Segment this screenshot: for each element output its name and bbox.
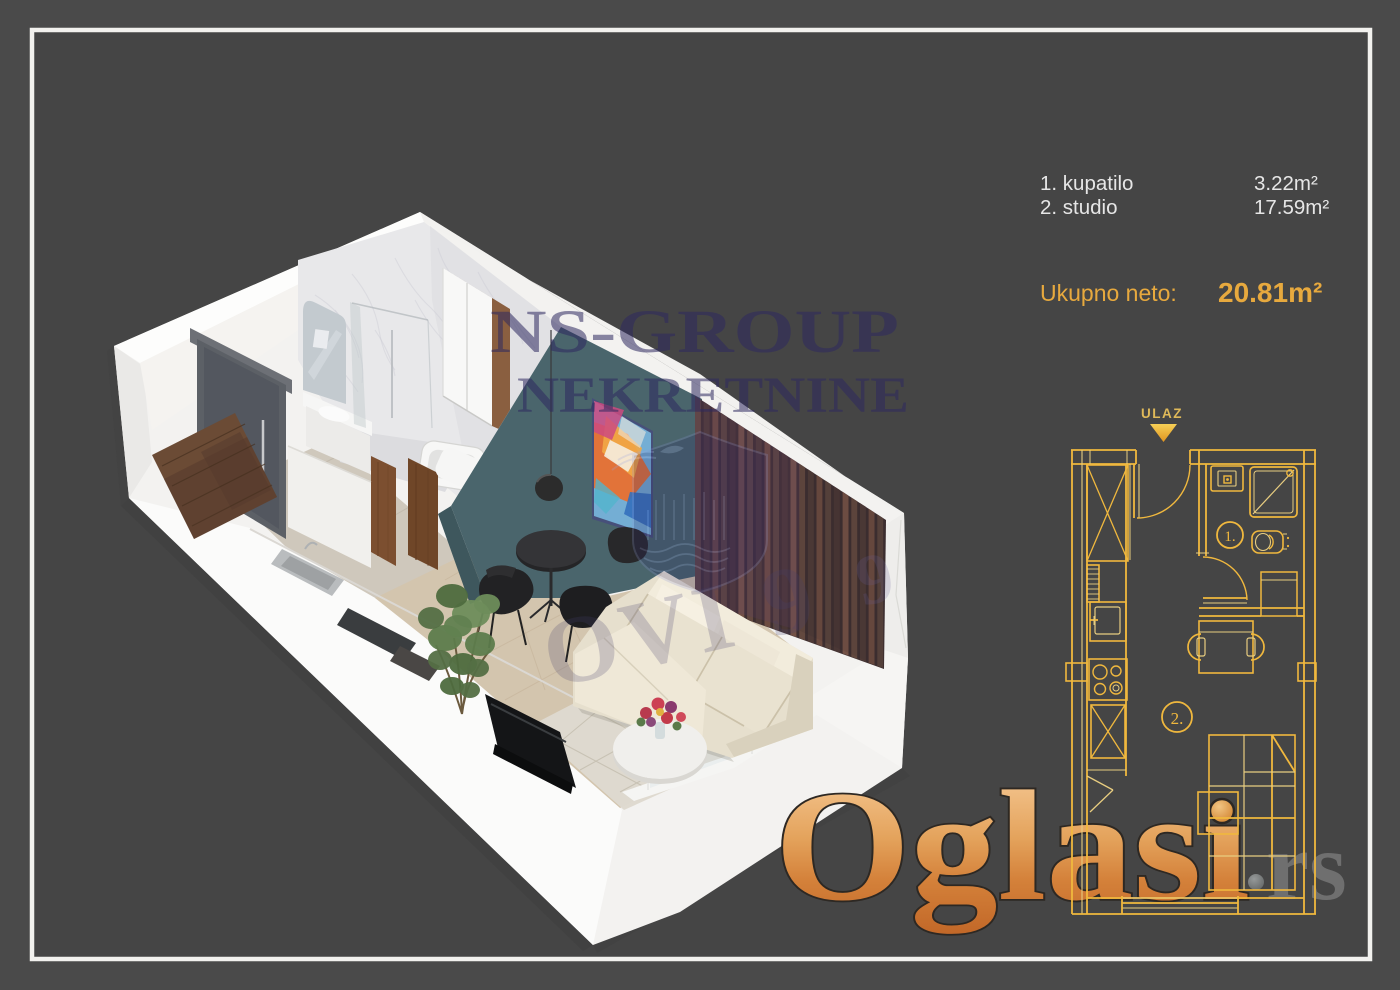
svg-text:1.: 1. <box>1224 529 1235 545</box>
svg-text:3.22m²: 3.22m² <box>1254 172 1318 195</box>
svg-text:rs: rs <box>1266 813 1347 920</box>
svg-text:20.81m²: 20.81m² <box>1218 277 1322 308</box>
svg-text:2. studio: 2. studio <box>1040 196 1118 219</box>
svg-text:17.59m²: 17.59m² <box>1254 196 1329 219</box>
svg-text:ULAZ: ULAZ <box>1141 406 1183 421</box>
svg-text:1. kupatilo: 1. kupatilo <box>1040 172 1133 195</box>
svg-text:2.: 2. <box>1171 709 1184 728</box>
svg-text:NS-GROUP: NS-GROUP <box>490 299 899 366</box>
svg-text:Ukupno neto:: Ukupno neto: <box>1040 280 1177 306</box>
svg-text:NEKRETNINE: NEKRETNINE <box>517 368 909 424</box>
